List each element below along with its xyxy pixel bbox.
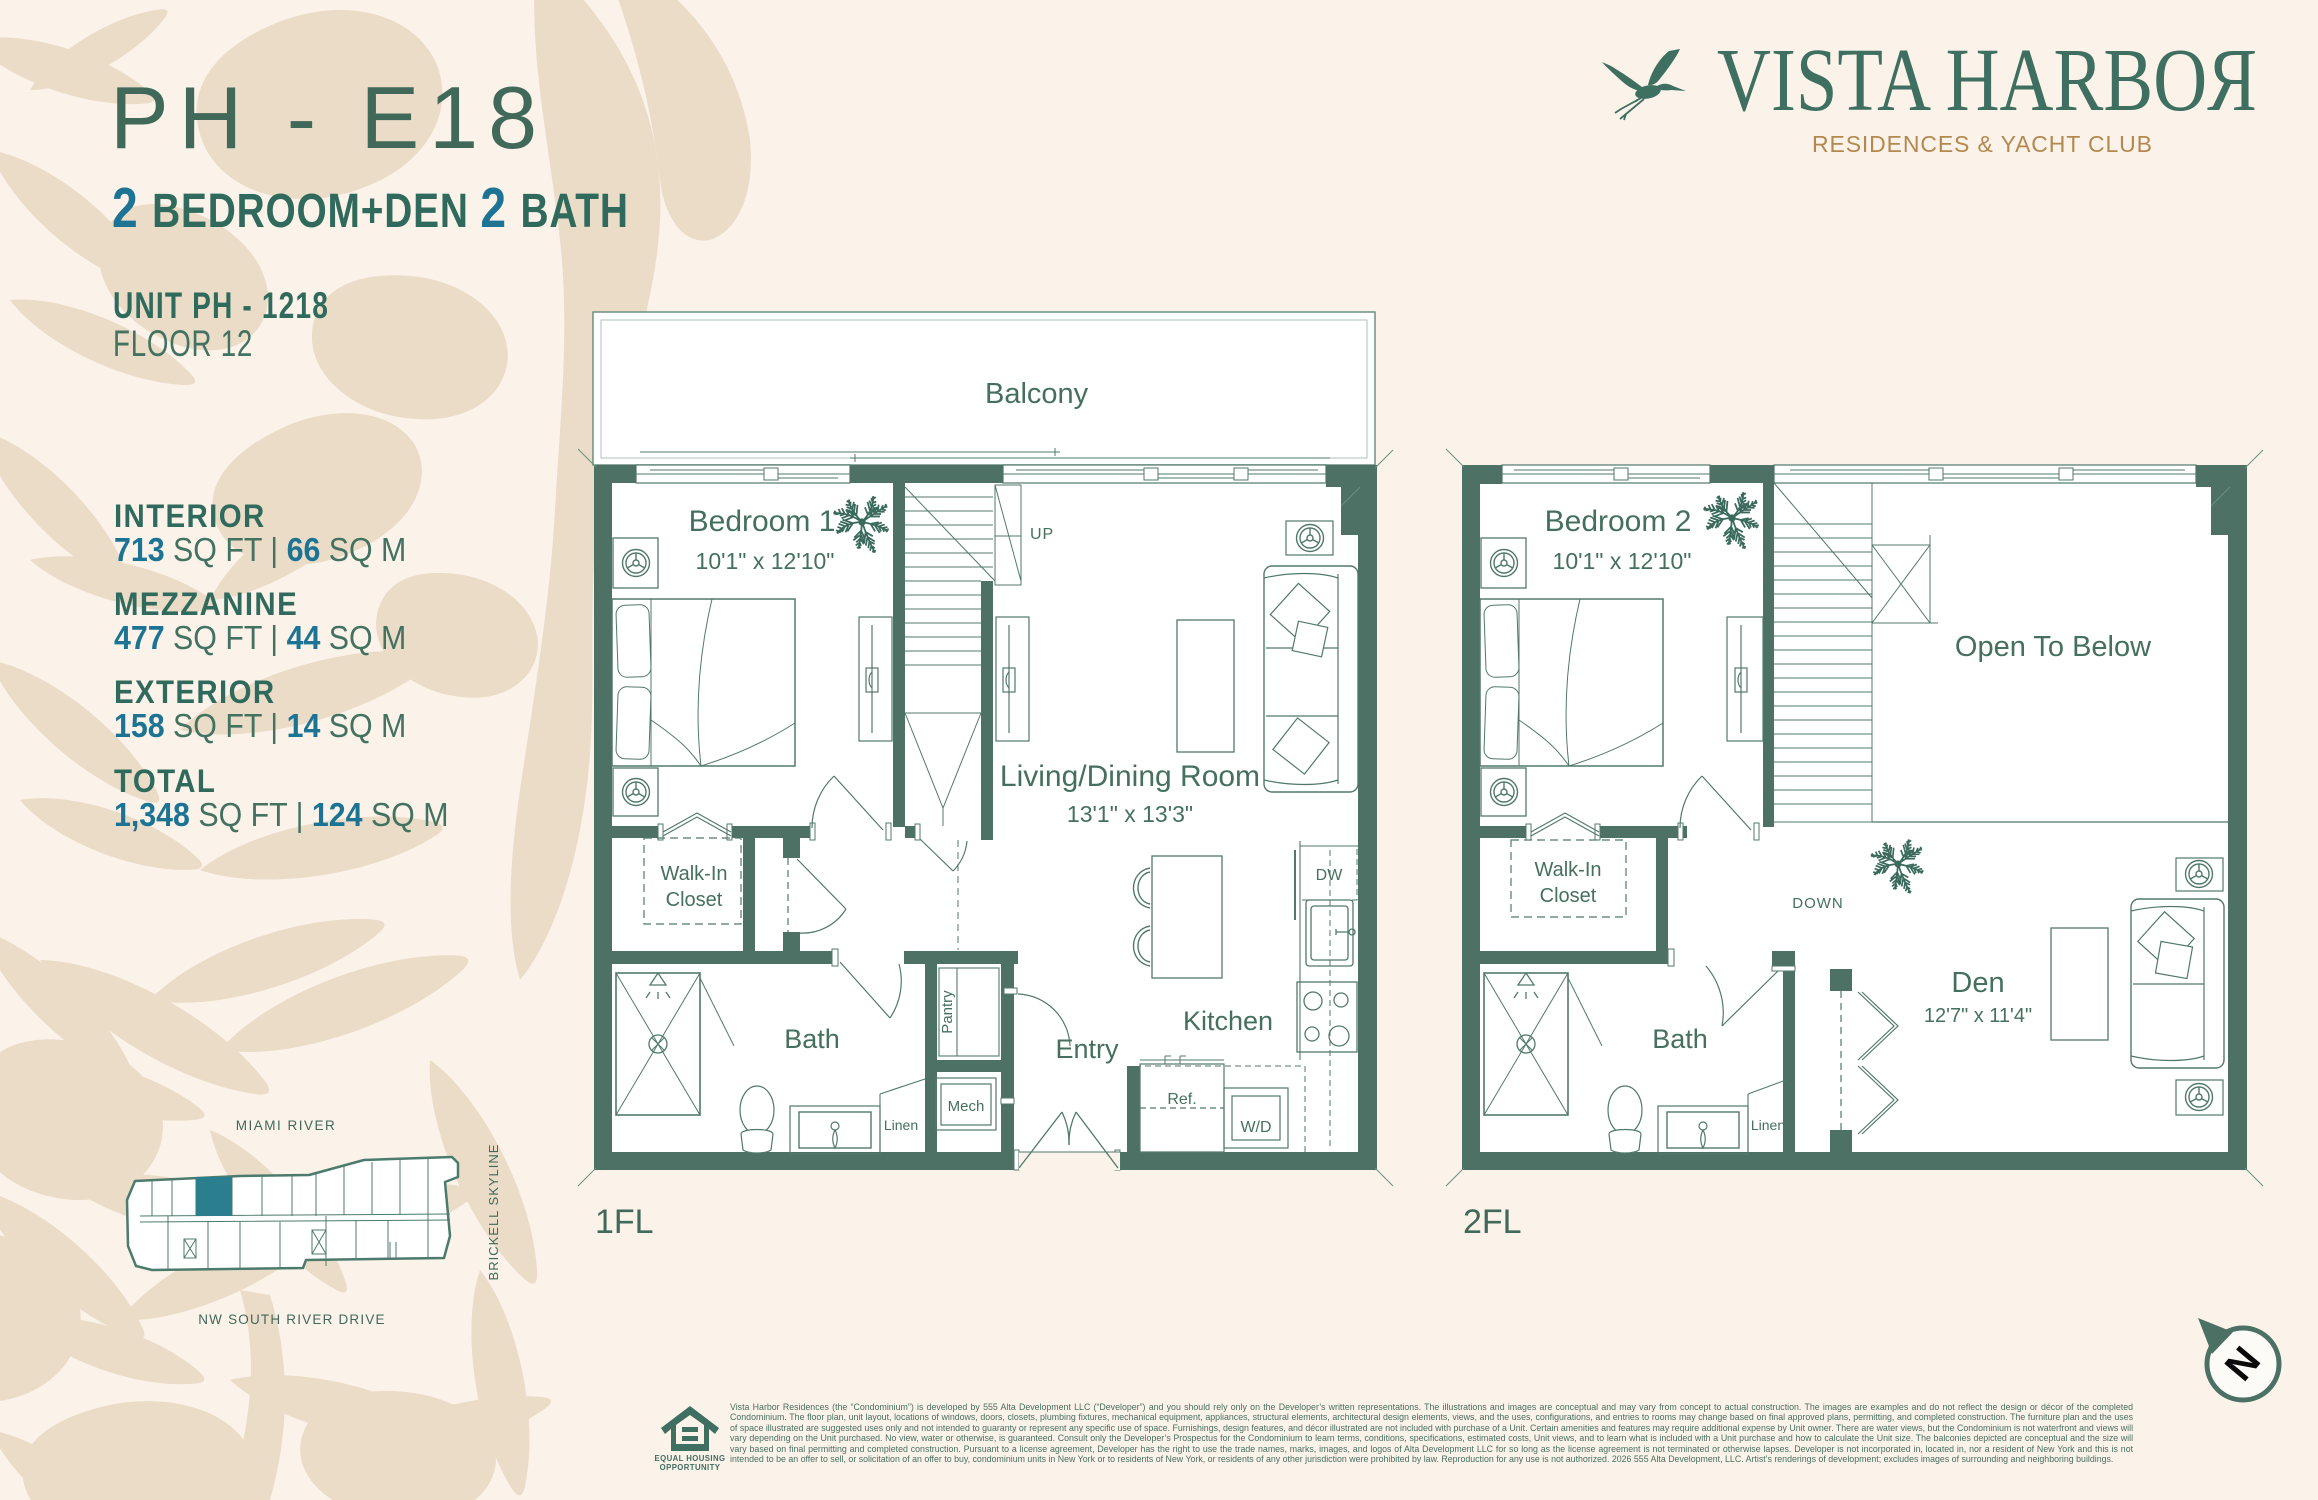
- svg-text:RESIDENCES & YACHT CLUB: RESIDENCES & YACHT CLUB: [1812, 131, 2158, 157]
- svg-text:Walk-In: Walk-In: [660, 863, 727, 885]
- svg-text:Bath: Bath: [1652, 1024, 1708, 1054]
- svg-text:Open To Below: Open To Below: [1955, 631, 2152, 663]
- svg-text:Entry: Entry: [1055, 1034, 1119, 1064]
- svg-text:Balcony: Balcony: [985, 378, 1089, 410]
- svg-text:Ref.: Ref.: [1167, 1091, 1196, 1108]
- svg-text:VISTA HARBOЯ: VISTA HARBOЯ: [1717, 31, 2257, 130]
- svg-text:BRICKELL SKYLINE: BRICKELL SKYLINE: [486, 1144, 501, 1281]
- svg-text:Linen: Linen: [1751, 1117, 1785, 1133]
- svg-text:10'1" x 12'10": 10'1" x 12'10": [696, 548, 835, 574]
- svg-text:MIAMI RIVER: MIAMI RIVER: [236, 1118, 337, 1133]
- svg-text:DOWN: DOWN: [1792, 895, 1844, 912]
- svg-text:Pantry: Pantry: [939, 990, 956, 1034]
- svg-text:1,348 SQ FT | 124 SQ M: 1,348 SQ FT | 124 SQ M: [114, 796, 448, 833]
- svg-text:W/D: W/D: [1240, 1119, 1271, 1136]
- svg-text:DW: DW: [1316, 867, 1344, 884]
- svg-text:Bath: Bath: [784, 1024, 840, 1054]
- svg-text:Bedroom 1: Bedroom 1: [689, 505, 836, 538]
- svg-text:2FL: 2FL: [1463, 1203, 1522, 1241]
- svg-text:Kitchen: Kitchen: [1183, 1006, 1273, 1036]
- svg-text:158 SQ FT | 14 SQ M: 158 SQ FT | 14 SQ M: [114, 707, 406, 744]
- svg-text:NW SOUTH RIVER DRIVE: NW SOUTH RIVER DRIVE: [198, 1312, 386, 1327]
- svg-text:Closet: Closet: [1540, 885, 1597, 907]
- svg-text:713 SQ FT | 66 SQ M: 713 SQ FT | 66 SQ M: [114, 531, 406, 568]
- svg-text:MEZZANINE: MEZZANINE: [114, 586, 298, 622]
- svg-text:UP: UP: [1030, 526, 1054, 543]
- svg-text:PH - E18: PH - E18: [110, 68, 547, 167]
- svg-text:13'1" x 13'3": 13'1" x 13'3": [1067, 801, 1193, 827]
- svg-text:Walk-In: Walk-In: [1534, 859, 1601, 881]
- svg-text:Mech: Mech: [948, 1098, 985, 1115]
- svg-text:FLOOR 12: FLOOR 12: [113, 322, 253, 364]
- svg-text:2 BEDROOM+DEN 2 BATH: 2 BEDROOM+DEN 2 BATH: [112, 175, 629, 239]
- svg-text:Closet: Closet: [666, 889, 723, 911]
- svg-text:1FL: 1FL: [595, 1203, 654, 1241]
- svg-text:Linen: Linen: [884, 1117, 918, 1133]
- svg-text:OPPORTUNITY: OPPORTUNITY: [660, 1463, 721, 1472]
- svg-text:UNIT PH - 1218: UNIT PH - 1218: [113, 284, 329, 326]
- svg-text:Den: Den: [1951, 967, 2004, 999]
- svg-text:EXTERIOR: EXTERIOR: [114, 674, 275, 710]
- svg-text:Living/Dining Room: Living/Dining Room: [1000, 760, 1260, 793]
- svg-text:EQUAL HOUSING: EQUAL HOUSING: [655, 1454, 726, 1463]
- svg-text:10'1" x 12'10": 10'1" x 12'10": [1553, 548, 1692, 574]
- svg-text:Bedroom 2: Bedroom 2: [1545, 505, 1692, 538]
- svg-text:TOTAL: TOTAL: [114, 763, 216, 799]
- svg-text:12'7" x 11'4": 12'7" x 11'4": [1924, 1005, 2032, 1027]
- svg-text:477 SQ FT | 44 SQ M: 477 SQ FT | 44 SQ M: [114, 619, 406, 656]
- svg-text:INTERIOR: INTERIOR: [114, 498, 266, 534]
